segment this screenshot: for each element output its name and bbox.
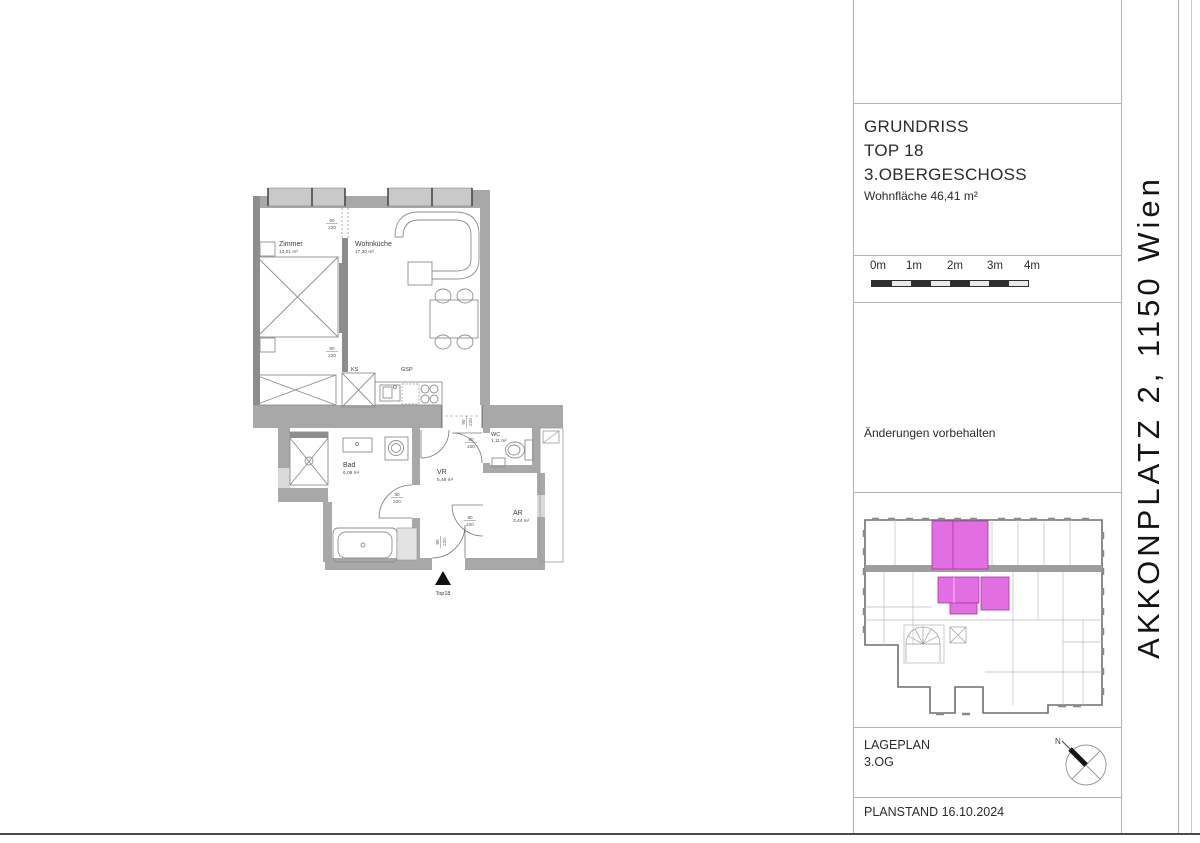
sheet-edge-line (1191, 0, 1192, 833)
svg-text:90: 90 (435, 539, 440, 545)
shower (290, 432, 328, 485)
room-area-bad: 6,09 m² (343, 470, 360, 476)
room-label-wc: WC (491, 432, 500, 438)
washing-machine (385, 437, 408, 460)
toilet (492, 440, 533, 467)
scale-label-1m: 1m (901, 260, 927, 272)
svg-text:220: 220 (442, 538, 447, 546)
plan-date: PLANSTAND 16.10.2024 (864, 805, 1004, 819)
compass-north-label: N (1055, 737, 1061, 746)
room-area-wc: 1,11 m² (491, 438, 507, 444)
shelf (397, 528, 417, 560)
living-area-label: Wohnfläche 46,41 m² (864, 189, 978, 203)
svg-text:220: 220 (328, 353, 336, 358)
dishwasher (402, 384, 419, 404)
room-label-vr: VR (437, 469, 447, 476)
project-address: AKKONPLATZ 2, 1150 Wien (1131, 175, 1167, 659)
scale-label-4m: 4m (1019, 260, 1045, 272)
dining-set (430, 289, 478, 349)
address-strip: AKKONPLATZ 2, 1150 Wien (1120, 0, 1179, 833)
window-icon (432, 188, 472, 206)
kitchen-counter (342, 373, 442, 407)
window-icon (312, 188, 345, 206)
plan-sheet: Zimmer 13,01 m² Wohnküche 17,30 m² Bad 6… (0, 0, 1200, 843)
svg-text:80: 80 (468, 437, 474, 442)
svg-text:220: 220 (466, 522, 474, 527)
sheet-bottom-border (0, 833, 1200, 835)
room-label-zimmer: Zimmer (279, 241, 303, 248)
room-label-wohnkueche: Wohnküche (355, 241, 392, 248)
scale-label-2m: 2m (942, 260, 968, 272)
door-arc-vr (421, 430, 449, 458)
svg-text:90: 90 (461, 419, 466, 425)
dim-bad-door: 80 220 (391, 492, 403, 504)
dim-portal: 90 220 (461, 416, 473, 428)
room-area-zimmer: 13,01 m² (279, 249, 298, 255)
svg-text:220: 220 (467, 444, 475, 449)
washbasin (343, 438, 372, 452)
dim-partition-top: 60 220 (326, 218, 338, 230)
svg-text:60: 60 (329, 218, 335, 223)
entrance-arrow-icon (435, 571, 451, 585)
dishwasher-label: GSP (401, 367, 413, 373)
siteplan-caption-floor: 3.OG (864, 754, 930, 771)
dim-partition-mid: 80 220 (326, 346, 338, 358)
site-plan (858, 512, 1110, 722)
svg-text:80: 80 (394, 492, 400, 497)
scale-label-3m: 3m (982, 260, 1008, 272)
room-area-vr: 5,46 m² (437, 477, 454, 483)
svg-text:220: 220 (328, 225, 336, 230)
title-line-3: 3.OBERGESCHOSS (864, 163, 1027, 187)
north-arrow-icon: N (1050, 733, 1110, 793)
dim-wc-door: 80 220 (465, 437, 477, 449)
svg-text:80: 80 (467, 515, 473, 520)
dim-entrance-door: 90 220 (435, 536, 447, 548)
room-label-ar: AR (513, 510, 523, 517)
window-icon (268, 188, 312, 206)
room-area-ar: 3,44 m² (513, 518, 530, 524)
fridge-label: KS (351, 367, 359, 373)
room-area-wohnkueche: 17,30 m² (355, 249, 374, 255)
scale-label-0m: 0m (865, 260, 891, 272)
siteplan-caption: LAGEPLAN 3.OG (864, 737, 930, 771)
title-line-1: GRUNDRISS (864, 115, 1027, 139)
floor-plan: Zimmer 13,01 m² Wohnküche 17,30 m² Bad 6… (235, 175, 580, 605)
dim-ar-door: 80 220 (464, 515, 476, 527)
dim-labels: 60 220 80 220 80 220 80 220 80 (326, 218, 477, 548)
drawing-title: GRUNDRISS TOP 18 3.OBERGESCHOSS (864, 115, 1027, 187)
bed (257, 242, 338, 352)
coffee-table (408, 262, 432, 285)
disclaimer-note: Änderungen vorbehalten (864, 426, 995, 440)
window-icon (388, 188, 432, 206)
cooktop (421, 385, 438, 403)
title-line-2: TOP 18 (864, 139, 1027, 163)
svg-text:220: 220 (393, 499, 401, 504)
room-label-bad: Bad (343, 462, 356, 469)
svg-text:220: 220 (468, 418, 473, 426)
scale-bar (871, 280, 1029, 287)
siteplan-caption-title: LAGEPLAN (864, 737, 930, 754)
walls-upper (253, 188, 563, 428)
bathtub (333, 528, 417, 562)
svg-text:80: 80 (329, 346, 335, 351)
entrance-unit-label: Top18 (436, 591, 451, 597)
wardrobe (255, 375, 336, 405)
